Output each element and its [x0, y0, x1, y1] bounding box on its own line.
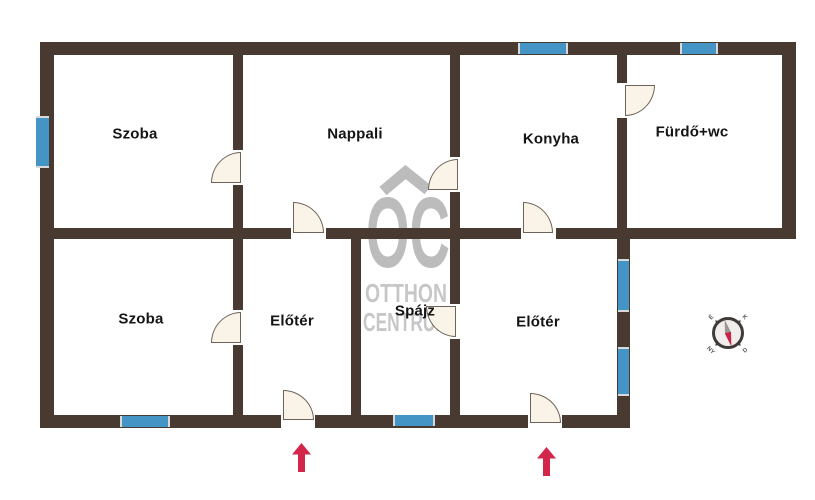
window-spajz-bottom [393, 415, 435, 426]
entrance-arrow-2-icon [537, 447, 556, 476]
window-eloter2-right-upper [618, 259, 629, 312]
compass-label-sw: NY [705, 346, 715, 356]
door-arc-entrance-2 [530, 393, 561, 423]
wall-divider-eloter1-spajz [351, 239, 361, 415]
room-label-eloter-1: Előtér [270, 313, 314, 330]
compass-label-se: D [742, 347, 750, 355]
room-label-eloter-2: Előtér [516, 314, 560, 331]
window-furdo-top [680, 43, 718, 54]
wall-middle-horizontal [40, 228, 796, 239]
door-arc-konyha [523, 202, 553, 233]
wall-divider-nappali-konyha [450, 55, 460, 228]
room-label-szoba-2: Szoba [118, 311, 163, 328]
room-label-konyha: Konyha [523, 131, 579, 148]
wall-divider-szoba1-nappali [233, 55, 243, 228]
compass-label-nw: É [707, 313, 715, 321]
window-konyha-top [518, 43, 568, 54]
room-label-szoba-1: Szoba [112, 126, 157, 143]
compass-label-ne: K [741, 314, 749, 322]
window-szoba1-left [36, 116, 49, 168]
floor-plan: OC OTTHON CENTRUM Szoba Nappali Konyha F… [0, 0, 815, 500]
window-eloter2-right-lower [618, 347, 629, 396]
door-arc-szoba2 [211, 312, 241, 343]
window-szoba2-bottom [120, 416, 170, 427]
room-label-nappali: Nappali [327, 126, 383, 143]
door-arc-szoba1 [211, 152, 241, 183]
entrance-arrow-1-icon [292, 443, 311, 472]
wall-right-outer [782, 42, 796, 238]
room-label-spajz: Spájz [395, 303, 435, 320]
room-label-furdo-wc: Fürdő+wc [656, 124, 729, 141]
door-arc-entrance-1 [283, 390, 314, 420]
compass-icon: É K D NY [704, 309, 752, 357]
door-arc-nappali-bottom [293, 202, 324, 233]
wall-divider-konyha-furdo [617, 55, 627, 228]
door-arc-furdo [625, 85, 655, 116]
